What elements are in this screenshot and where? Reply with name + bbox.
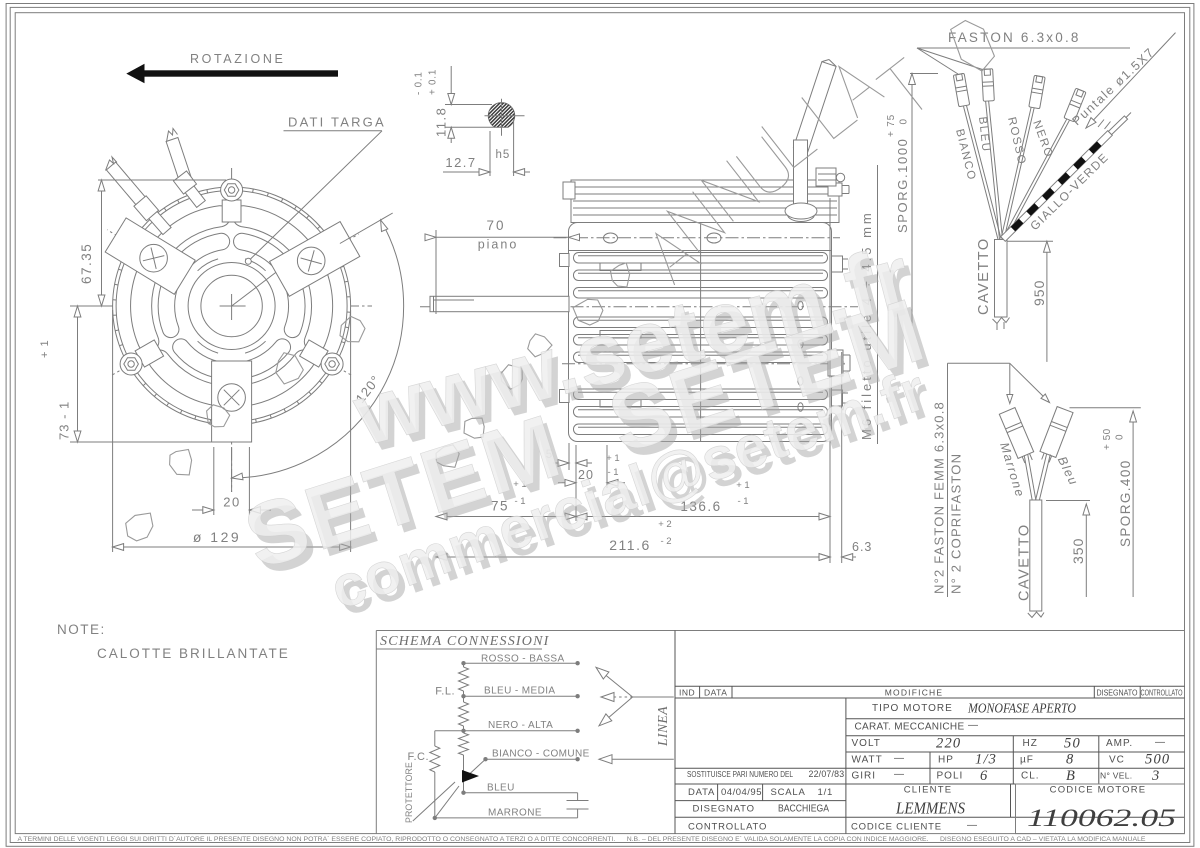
svg-text:SPORG.400: SPORG.400 <box>1118 459 1133 547</box>
svg-text:TIPO MOTORE: TIPO MOTORE <box>872 703 953 714</box>
svg-text:350: 350 <box>1070 538 1086 564</box>
svg-text:SOSTITUISCE PARI NUMERO DEL: SOSTITUISCE PARI NUMERO DEL <box>687 770 793 779</box>
svg-text:+ 0.1: + 0.1 <box>428 69 439 95</box>
svg-text:11.8: 11.8 <box>433 107 448 137</box>
svg-text:6.3: 6.3 <box>852 540 872 554</box>
svg-text:SPORG.1000: SPORG.1000 <box>895 138 910 234</box>
svg-text:- 0.1: - 0.1 <box>414 71 425 95</box>
svg-text:CONTROLLATO: CONTROLLATO <box>1141 688 1183 697</box>
svg-text:8: 8 <box>1066 752 1074 768</box>
svg-text:6: 6 <box>980 768 988 784</box>
svg-text:AMP.: AMP. <box>1106 738 1133 749</box>
svg-text:h5: h5 <box>496 149 511 161</box>
svg-text:SCALA: SCALA <box>771 787 806 798</box>
svg-text:BACCHIEGA: BACCHIEGA <box>778 804 829 815</box>
svg-text:FASTON 6.3x0.8: FASTON 6.3x0.8 <box>948 30 1081 45</box>
svg-text:0: 0 <box>899 118 910 124</box>
svg-text:F.C.: F.C. <box>407 751 429 763</box>
svg-text:110062.05: 110062.05 <box>1027 803 1176 832</box>
svg-text:B: B <box>1066 768 1076 784</box>
svg-text:CAVETTO: CAVETTO <box>1017 523 1033 601</box>
svg-text:POLI: POLI <box>937 771 964 782</box>
svg-text:SCHEMA CONNESSIONI: SCHEMA CONNESSIONI <box>380 634 550 649</box>
svg-text:1/1: 1/1 <box>818 787 834 798</box>
svg-text:CL.: CL. <box>1021 771 1040 782</box>
svg-text:- 2: - 2 <box>660 536 671 547</box>
svg-text:70: 70 <box>486 218 505 233</box>
svg-text:ø 129: ø 129 <box>193 529 241 545</box>
svg-text:CALOTTE BRILLANTATE: CALOTTE BRILLANTATE <box>97 646 290 661</box>
svg-text:VOLT: VOLT <box>852 738 881 749</box>
svg-text:F.L.: F.L. <box>435 686 455 698</box>
svg-text:BLEU: BLEU <box>487 783 515 794</box>
svg-text:DISEGNATO: DISEGNATO <box>693 804 755 815</box>
svg-text:A TERMINI DELLE VIGENTI LEGGI: A TERMINI DELLE VIGENTI LEGGI SUI DIRITT… <box>18 836 1146 843</box>
svg-text:50: 50 <box>1064 736 1081 752</box>
svg-text:HZ: HZ <box>1023 738 1038 749</box>
svg-text:+ 75: + 75 <box>886 114 897 137</box>
svg-text:µF: µF <box>1020 754 1034 765</box>
svg-text:LEMMENS: LEMMENS <box>895 799 965 818</box>
svg-text:500: 500 <box>1145 752 1170 768</box>
svg-text:MONOFASE APERTO: MONOFASE APERTO <box>967 702 1076 717</box>
svg-text:220: 220 <box>936 736 961 752</box>
svg-text:WATT: WATT <box>852 754 883 765</box>
svg-text:950: 950 <box>1031 280 1047 306</box>
svg-text:piano: piano <box>478 238 519 252</box>
svg-text:CLIENTE: CLIENTE <box>904 785 953 796</box>
svg-text:N°2 FASTON FEMM 6.3x0.8: N°2 FASTON FEMM 6.3x0.8 <box>932 401 947 594</box>
svg-text:3: 3 <box>1151 768 1160 784</box>
svg-text:N° VEL.: N° VEL. <box>1100 771 1132 781</box>
svg-text:04/04/95: 04/04/95 <box>721 787 762 798</box>
svg-text:211.6: 211.6 <box>609 537 651 553</box>
svg-text:22/07/83: 22/07/83 <box>809 769 845 779</box>
svg-text:ROSSO - BASSA: ROSSO - BASSA <box>481 654 565 665</box>
svg-text:—: — <box>968 720 978 731</box>
svg-text:CODICE CLIENTE: CODICE CLIENTE <box>851 821 942 832</box>
svg-text:+ 1: + 1 <box>39 339 51 358</box>
svg-text:CAVETTO: CAVETTO <box>976 237 992 315</box>
svg-text:NERO - ALTA: NERO - ALTA <box>488 720 553 731</box>
svg-text:—: — <box>894 769 904 780</box>
svg-text:ROTAZIONE: ROTAZIONE <box>190 52 285 66</box>
svg-text:—: — <box>894 753 904 764</box>
svg-text:73 - 1: 73 - 1 <box>57 401 72 440</box>
svg-text:67.35: 67.35 <box>79 243 94 284</box>
svg-text:N° 2 COPRIFASTON: N° 2 COPRIFASTON <box>949 453 964 594</box>
svg-text:- 1: - 1 <box>737 496 748 507</box>
svg-text:HP: HP <box>938 754 954 765</box>
svg-text:IND: IND <box>679 687 695 697</box>
svg-text:+ 50: + 50 <box>1102 428 1113 450</box>
svg-text:12.7: 12.7 <box>445 155 476 170</box>
svg-text:CARAT. MECCANICHE: CARAT. MECCANICHE <box>855 722 965 733</box>
svg-text:VC: VC <box>1109 754 1125 765</box>
svg-text:DATI TARGA: DATI TARGA <box>288 115 386 130</box>
svg-text:DISEGNATO: DISEGNATO <box>1097 688 1138 697</box>
svg-text:LINEA: LINEA <box>655 706 670 747</box>
svg-text:BLEU - MEDIA: BLEU - MEDIA <box>484 686 555 697</box>
svg-text:—: — <box>1155 737 1165 748</box>
svg-text:GIRI: GIRI <box>852 771 877 782</box>
svg-text:0: 0 <box>1115 434 1126 440</box>
svg-text:BIANCO - COMUNE: BIANCO - COMUNE <box>492 749 590 760</box>
svg-text:NOTE:: NOTE: <box>57 622 106 637</box>
svg-text:MODIFICHE: MODIFICHE <box>885 687 944 697</box>
svg-text:1/3: 1/3 <box>975 752 997 768</box>
svg-text:PROTETTORE: PROTETTORE <box>404 762 414 823</box>
svg-text:DATA: DATA <box>704 687 727 697</box>
svg-text:CODICE MOTORE: CODICE MOTORE <box>1050 785 1147 796</box>
svg-text:CONTROLLATO: CONTROLLATO <box>688 821 767 832</box>
svg-text:DATA: DATA <box>688 787 715 798</box>
svg-text:MARRONE: MARRONE <box>488 808 542 819</box>
svg-text:—: — <box>967 820 977 831</box>
